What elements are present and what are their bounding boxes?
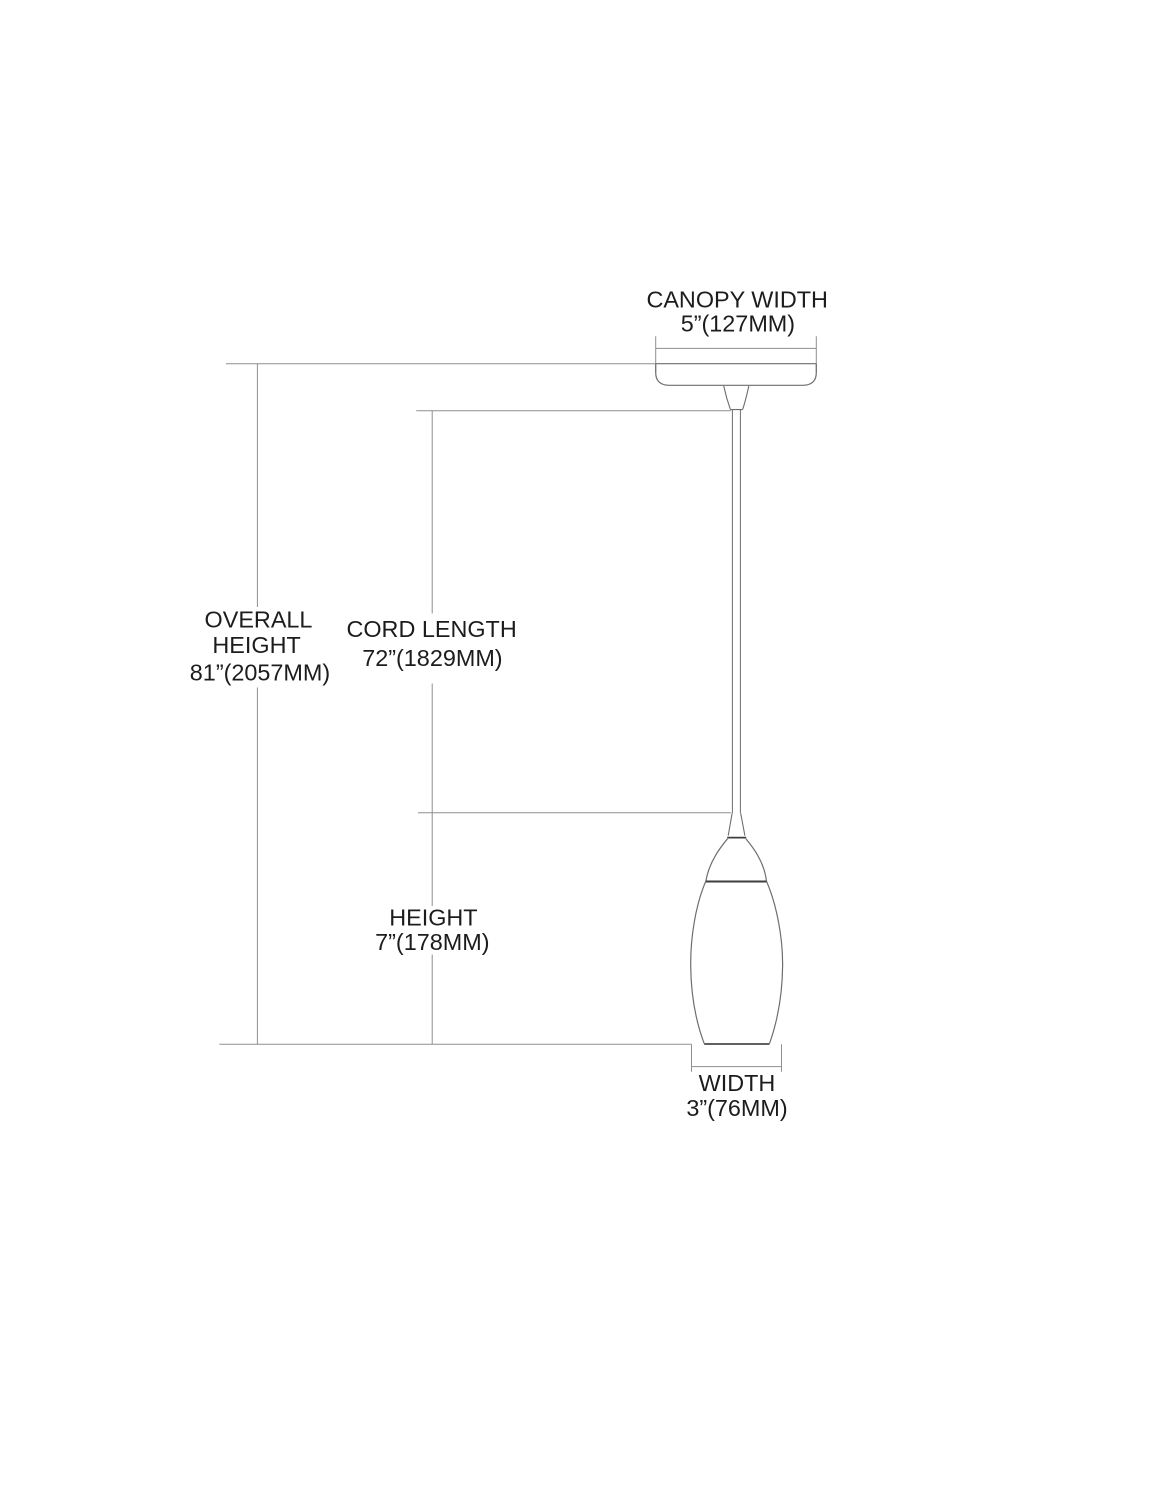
svg-text:CANOPY WIDTH: CANOPY WIDTH — [646, 287, 828, 313]
svg-text:CORD LENGTH: CORD LENGTH — [346, 616, 516, 642]
svg-text:72”(1829MM): 72”(1829MM) — [362, 645, 502, 671]
svg-text:HEIGHT: HEIGHT — [212, 632, 300, 658]
svg-text:81”(2057MM): 81”(2057MM) — [190, 660, 330, 686]
svg-text:3”(76MM): 3”(76MM) — [686, 1095, 787, 1121]
svg-text:WIDTH: WIDTH — [699, 1070, 776, 1096]
svg-text:HEIGHT: HEIGHT — [389, 905, 477, 931]
svg-text:OVERALL: OVERALL — [205, 607, 313, 633]
svg-text:7”(178MM): 7”(178MM) — [375, 929, 489, 955]
svg-text:5”(127MM): 5”(127MM) — [681, 311, 795, 337]
